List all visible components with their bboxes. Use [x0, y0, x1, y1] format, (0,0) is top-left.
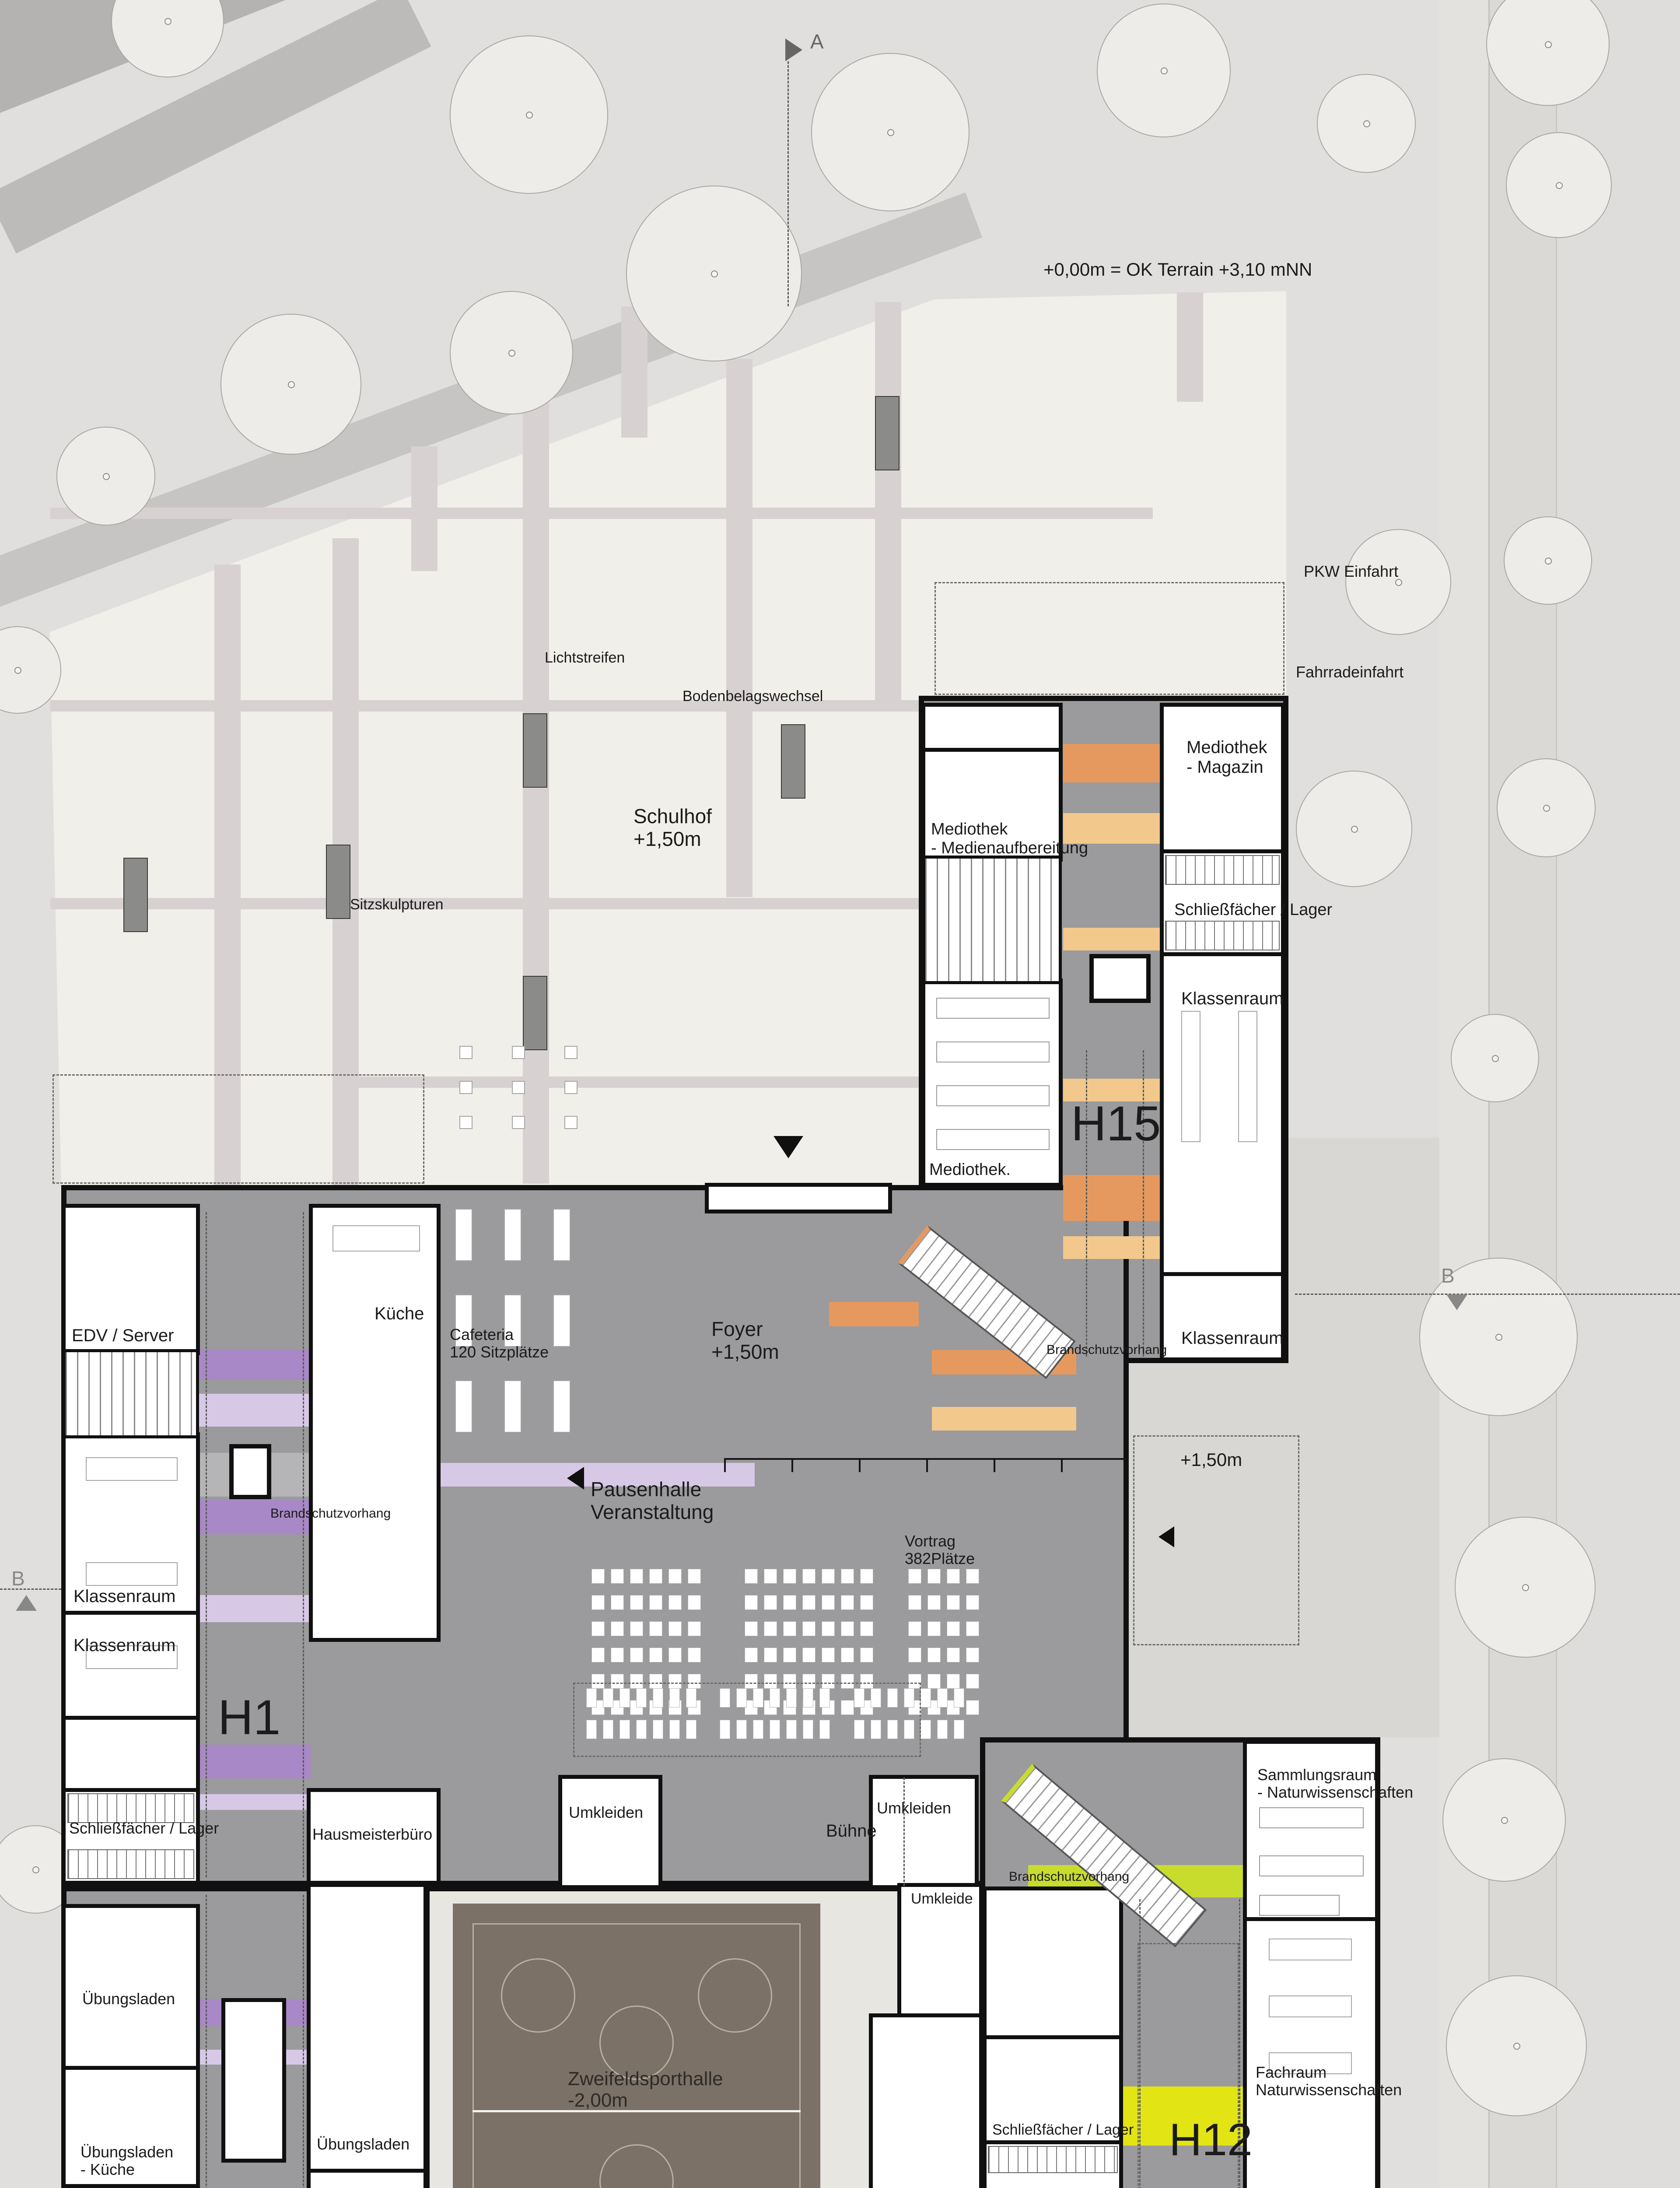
tree [1504, 516, 1592, 605]
auditorium-seat [802, 1648, 815, 1662]
room-label: +1,50m [1180, 1449, 1242, 1470]
sitzskulptur-bench [781, 724, 805, 799]
room-label: Bodenbelagswechsel [682, 688, 823, 705]
auditorium-seat [668, 1621, 682, 1636]
furniture-table [332, 1225, 420, 1252]
dashed-outline [573, 1683, 921, 1757]
room-label: Klassenraum [1181, 1329, 1283, 1348]
room-label: Schließfächer / Lager [992, 2121, 1134, 2138]
room [873, 1779, 975, 1885]
corridor-stripe-purple_light [197, 1794, 311, 1810]
room-label: Schließfächer / Lager [69, 1820, 219, 1837]
shelf [936, 1129, 1050, 1150]
room-label: Brandschutzvorhang [1009, 1869, 1129, 1884]
corridor-stripe-tan [1063, 1236, 1164, 1259]
auditorium-seat [822, 1595, 835, 1610]
room [873, 2017, 979, 2188]
room-label: Fachraum Naturwissenschaften [1256, 2064, 1402, 2099]
room-label: Schließfächer / Lager [1174, 901, 1332, 919]
dashed-guide-line [303, 1212, 304, 1877]
auditorium-seat [649, 1648, 662, 1662]
dashed-guide-line [903, 1778, 905, 1886]
room-label: Brandschutzvorhang [270, 1506, 391, 1521]
auditorium-seat [966, 1569, 979, 1584]
auditorium-seat [860, 1595, 873, 1610]
room-label: PKW Einfahrt [1304, 563, 1398, 580]
patio-table [459, 1116, 472, 1129]
tree [1455, 1517, 1596, 1658]
staircase [66, 1352, 196, 1435]
dashed-guide-line [1295, 1294, 1680, 1295]
room-label: Klassenraum [73, 1636, 175, 1655]
room-label: Pausenhalle Veranstaltung [591, 1478, 714, 1523]
auditorium-seat [764, 1595, 777, 1610]
auditorium-seat [822, 1621, 835, 1636]
tree [811, 53, 969, 211]
room [66, 1720, 196, 1791]
room-label: Zweifeldsporthalle -2,00m [568, 2068, 723, 2111]
court-circle [698, 1958, 772, 2033]
auditorium-seat [688, 1569, 701, 1584]
auditorium-seat [611, 1569, 624, 1584]
dashed-guide-line [0, 1588, 61, 1590]
room-label: Klassenraum [1181, 989, 1283, 1009]
tree [1345, 529, 1451, 635]
auditorium-seat [841, 1621, 854, 1636]
elevator [229, 1444, 271, 1499]
locker-row [68, 1850, 193, 1878]
section-marker-label: A [810, 31, 824, 53]
direction-triangle-down [773, 1136, 803, 1158]
auditorium-seat [802, 1569, 815, 1584]
tree [1317, 74, 1416, 173]
auditorium-seat [668, 1569, 682, 1584]
auditorium-seat [745, 1595, 758, 1610]
stacked-chair [937, 1688, 948, 1708]
auditorium-seat [860, 1569, 873, 1584]
paving-stripe [726, 359, 752, 897]
floor-plan-canvas: LichtstreifenBodenbelagswechselSchulhof … [0, 0, 1680, 2188]
shelf [1259, 1807, 1364, 1828]
room [225, 2002, 282, 2159]
hall-code-label: H12 [1169, 2114, 1253, 2165]
auditorium-seat [966, 1621, 979, 1636]
auditorium-seat [649, 1621, 662, 1636]
auditorium-seat [802, 1595, 815, 1610]
shelf [936, 1085, 1050, 1106]
room-label: Mediothek - Magazin [1186, 738, 1267, 777]
sitzskulptur-bench [875, 396, 899, 470]
room-label: Übungsladen [82, 1990, 175, 2008]
auditorium-seat [860, 1621, 873, 1636]
auditorium-seat [630, 1621, 643, 1636]
paving-stripe [359, 1076, 919, 1088]
tree [1451, 1014, 1539, 1102]
corridor-stripe-purple_strong [197, 1349, 311, 1380]
corridor-stripe-purple_light [197, 1394, 311, 1427]
auditorium-seat [745, 1621, 758, 1636]
auditorium-seat [908, 1569, 921, 1584]
room-label: Fahrradeinfahrt [1296, 663, 1403, 681]
room [925, 707, 1059, 750]
locker-row [1166, 922, 1279, 950]
auditorium-seat [611, 1621, 624, 1636]
auditorium-seat [802, 1621, 815, 1636]
room-label: Umkleide [911, 1890, 973, 1907]
room-label: Klassenraum [73, 1587, 175, 1606]
cafeteria-table [553, 1380, 570, 1433]
direction-triangle-left [1158, 1526, 1174, 1547]
auditorium-seat [745, 1648, 758, 1662]
furniture-table [1269, 1939, 1352, 1960]
cafeteria-table [504, 1209, 521, 1261]
patio-table [512, 1116, 525, 1129]
tree [626, 186, 802, 361]
auditorium-seat [745, 1569, 758, 1584]
auditorium-seat [947, 1621, 960, 1636]
room [66, 1908, 196, 2069]
auditorium-seat [649, 1595, 662, 1610]
locker-row [68, 1794, 193, 1822]
auditorium-seat [908, 1595, 921, 1610]
tree [450, 35, 608, 194]
locker-row [1166, 856, 1279, 884]
room-label: Hausmeisterbüro [312, 1826, 432, 1843]
cafeteria-table [553, 1209, 570, 1261]
room-label: Sitzskulpturen [350, 896, 444, 913]
room [313, 1208, 437, 1638]
room [311, 1887, 423, 2172]
paving-stripe [50, 898, 919, 909]
auditorium-seat [611, 1595, 624, 1610]
cafeteria-table [455, 1380, 472, 1433]
cafeteria-table [553, 1294, 570, 1347]
shelf [936, 998, 1050, 1019]
street-curb-line [1556, 0, 1557, 2188]
dimension-tick-line [724, 1458, 1129, 1472]
auditorium-seat [927, 1569, 941, 1584]
hall-code-label: H1 [218, 1690, 280, 1745]
auditorium-seat [688, 1595, 701, 1610]
stacked-chair [920, 1720, 931, 1739]
hall-code-label: H15 [1071, 1096, 1161, 1151]
datum-note: +0,00m = OK Terrain +3,10 mNN [1043, 259, 1312, 280]
auditorium-seat [822, 1648, 835, 1662]
auditorium-seat [908, 1621, 921, 1636]
auditorium-seat [822, 1569, 835, 1584]
paving-stripe [1177, 292, 1203, 402]
dashed-outline [52, 1074, 424, 1184]
auditorium-seat [611, 1648, 624, 1662]
room-label: Vortrag 382Plätze [905, 1532, 975, 1568]
auditorium-seat [630, 1569, 643, 1584]
room-label: Umkleiden [877, 1799, 951, 1817]
auditorium-seat [591, 1595, 605, 1610]
auditorium-seat [688, 1648, 701, 1662]
furniture-table [86, 1457, 178, 1481]
room-label: Bühne [826, 1821, 877, 1841]
paving-stripe [875, 302, 901, 701]
patio-table [564, 1046, 577, 1059]
room [709, 1187, 888, 1210]
room-label: Schulhof +1,50m [633, 805, 712, 850]
auditorium-seat [764, 1648, 777, 1662]
auditorium-seat [591, 1621, 605, 1636]
dashed-guide-line [787, 61, 789, 306]
auditorium-seat [947, 1595, 960, 1610]
patio-table [512, 1046, 525, 1059]
tree [1497, 758, 1596, 857]
sitzskulptur-bench [523, 713, 547, 788]
room-label: Foyer +1,50m [711, 1318, 779, 1363]
stacked-chair [954, 1720, 964, 1739]
elevator [1089, 954, 1151, 1003]
room-label: Cafeteria 120 Sitzplätze [450, 1326, 549, 1361]
tree [220, 314, 361, 455]
section-marker-label: B [1441, 1265, 1455, 1287]
auditorium-seat [966, 1700, 979, 1715]
auditorium-seat [591, 1648, 605, 1662]
patio-table [512, 1081, 525, 1094]
room-label: Mediothek - Medienaufbereitung [931, 820, 1088, 857]
room [562, 1779, 658, 1885]
auditorium-seat [649, 1569, 662, 1584]
room-label: Übungsladen - Küche [80, 2143, 173, 2179]
auditorium-seat [591, 1569, 605, 1584]
room [311, 2173, 423, 2188]
sitzskulptur-bench [326, 845, 350, 919]
direction-triangle-up [16, 1595, 37, 1611]
shelf [936, 1041, 1050, 1062]
dashed-outline [934, 582, 1284, 695]
corridor-stripe-orange [1063, 744, 1164, 782]
room [1164, 707, 1281, 852]
patio-table [459, 1046, 472, 1059]
auditorium-seat [668, 1595, 682, 1610]
room-label: Übungsladen [317, 2135, 409, 2153]
auditorium-seat [841, 1595, 854, 1610]
room-label: EDV / Server [72, 1326, 174, 1346]
corridor-stripe-orange [1063, 1175, 1164, 1221]
patio-table [459, 1081, 472, 1094]
direction-triangle-left [567, 1467, 584, 1490]
auditorium-seat [668, 1648, 682, 1662]
auditorium-seat [783, 1648, 796, 1662]
direction-triangle-right [785, 39, 802, 61]
auditorium-seat [841, 1569, 854, 1584]
tree [1506, 132, 1612, 238]
room-label: Sammlungsraum - Naturwissenschaften [1257, 1766, 1413, 1802]
room-label: Umkleiden [569, 1804, 643, 1821]
patio-table [564, 1116, 577, 1129]
auditorium-seat [966, 1648, 979, 1662]
corridor-stripe-orange [829, 1302, 919, 1326]
stacked-chair [954, 1688, 964, 1708]
furniture-table [1238, 1011, 1257, 1142]
court-circle [501, 1958, 575, 2033]
dashed-guide-line [206, 1212, 207, 1877]
shelf [1259, 1895, 1340, 1916]
auditorium-seat [927, 1621, 941, 1636]
auditorium-seat [630, 1595, 643, 1610]
room-label: Mediothek. [929, 1161, 1011, 1179]
auditorium-seat [860, 1648, 873, 1662]
auditorium-seat [783, 1621, 796, 1636]
auditorium-seat [966, 1674, 979, 1689]
cafeteria-table [504, 1380, 521, 1433]
stacked-chair [920, 1688, 931, 1708]
section-marker-label: B [11, 1567, 25, 1590]
furniture-table [1269, 1995, 1352, 2017]
auditorium-seat [947, 1674, 960, 1689]
room-label: Lichtstreifen [545, 649, 625, 666]
auditorium-seat [764, 1569, 777, 1584]
direction-triangle-down [1446, 1294, 1467, 1310]
tree [111, 0, 224, 77]
auditorium-seat [783, 1569, 796, 1584]
paving-stripe [50, 508, 1153, 519]
tree [1296, 771, 1412, 887]
auditorium-seat [841, 1648, 854, 1662]
corridor-stripe-tan [1063, 928, 1164, 950]
corridor-stripe-purple_strong [197, 1745, 311, 1778]
dashed-guide-line [206, 1895, 207, 2188]
auditorium-seat [947, 1648, 960, 1662]
auditorium-seat [966, 1595, 979, 1610]
tree [56, 427, 155, 526]
auditorium-seat [927, 1674, 941, 1689]
auditorium-seat [783, 1595, 796, 1610]
dashed-guide-line [303, 1895, 304, 2188]
tree [450, 291, 573, 414]
auditorium-seat [947, 1569, 960, 1584]
auditorium-seat [908, 1648, 921, 1662]
auditorium-seat [630, 1648, 643, 1662]
room [987, 1890, 1119, 2038]
tree [1446, 1975, 1587, 2116]
patio-table [564, 1081, 577, 1094]
tree [1442, 1758, 1566, 1882]
shelf [1259, 1855, 1364, 1876]
cafeteria-table [455, 1209, 472, 1261]
auditorium-seat [764, 1621, 777, 1636]
staircase [925, 859, 1059, 981]
furniture-table [1181, 1011, 1200, 1142]
locker-row [989, 2147, 1117, 2172]
tree [1097, 4, 1231, 137]
auditorium-seat [688, 1621, 701, 1636]
sitzskulptur-bench [123, 858, 148, 932]
auditorium-seat [927, 1648, 941, 1662]
auditorium-seat [927, 1595, 941, 1610]
sitzskulptur-bench [523, 976, 547, 1050]
stacked-chair [937, 1720, 948, 1739]
corridor-stripe-tan [932, 1407, 1076, 1431]
room-label: Küche [374, 1304, 424, 1324]
furniture-table [86, 1562, 178, 1586]
room-label: Brandschutzvorhang [1046, 1343, 1167, 1357]
street-area [1556, 0, 1680, 2188]
